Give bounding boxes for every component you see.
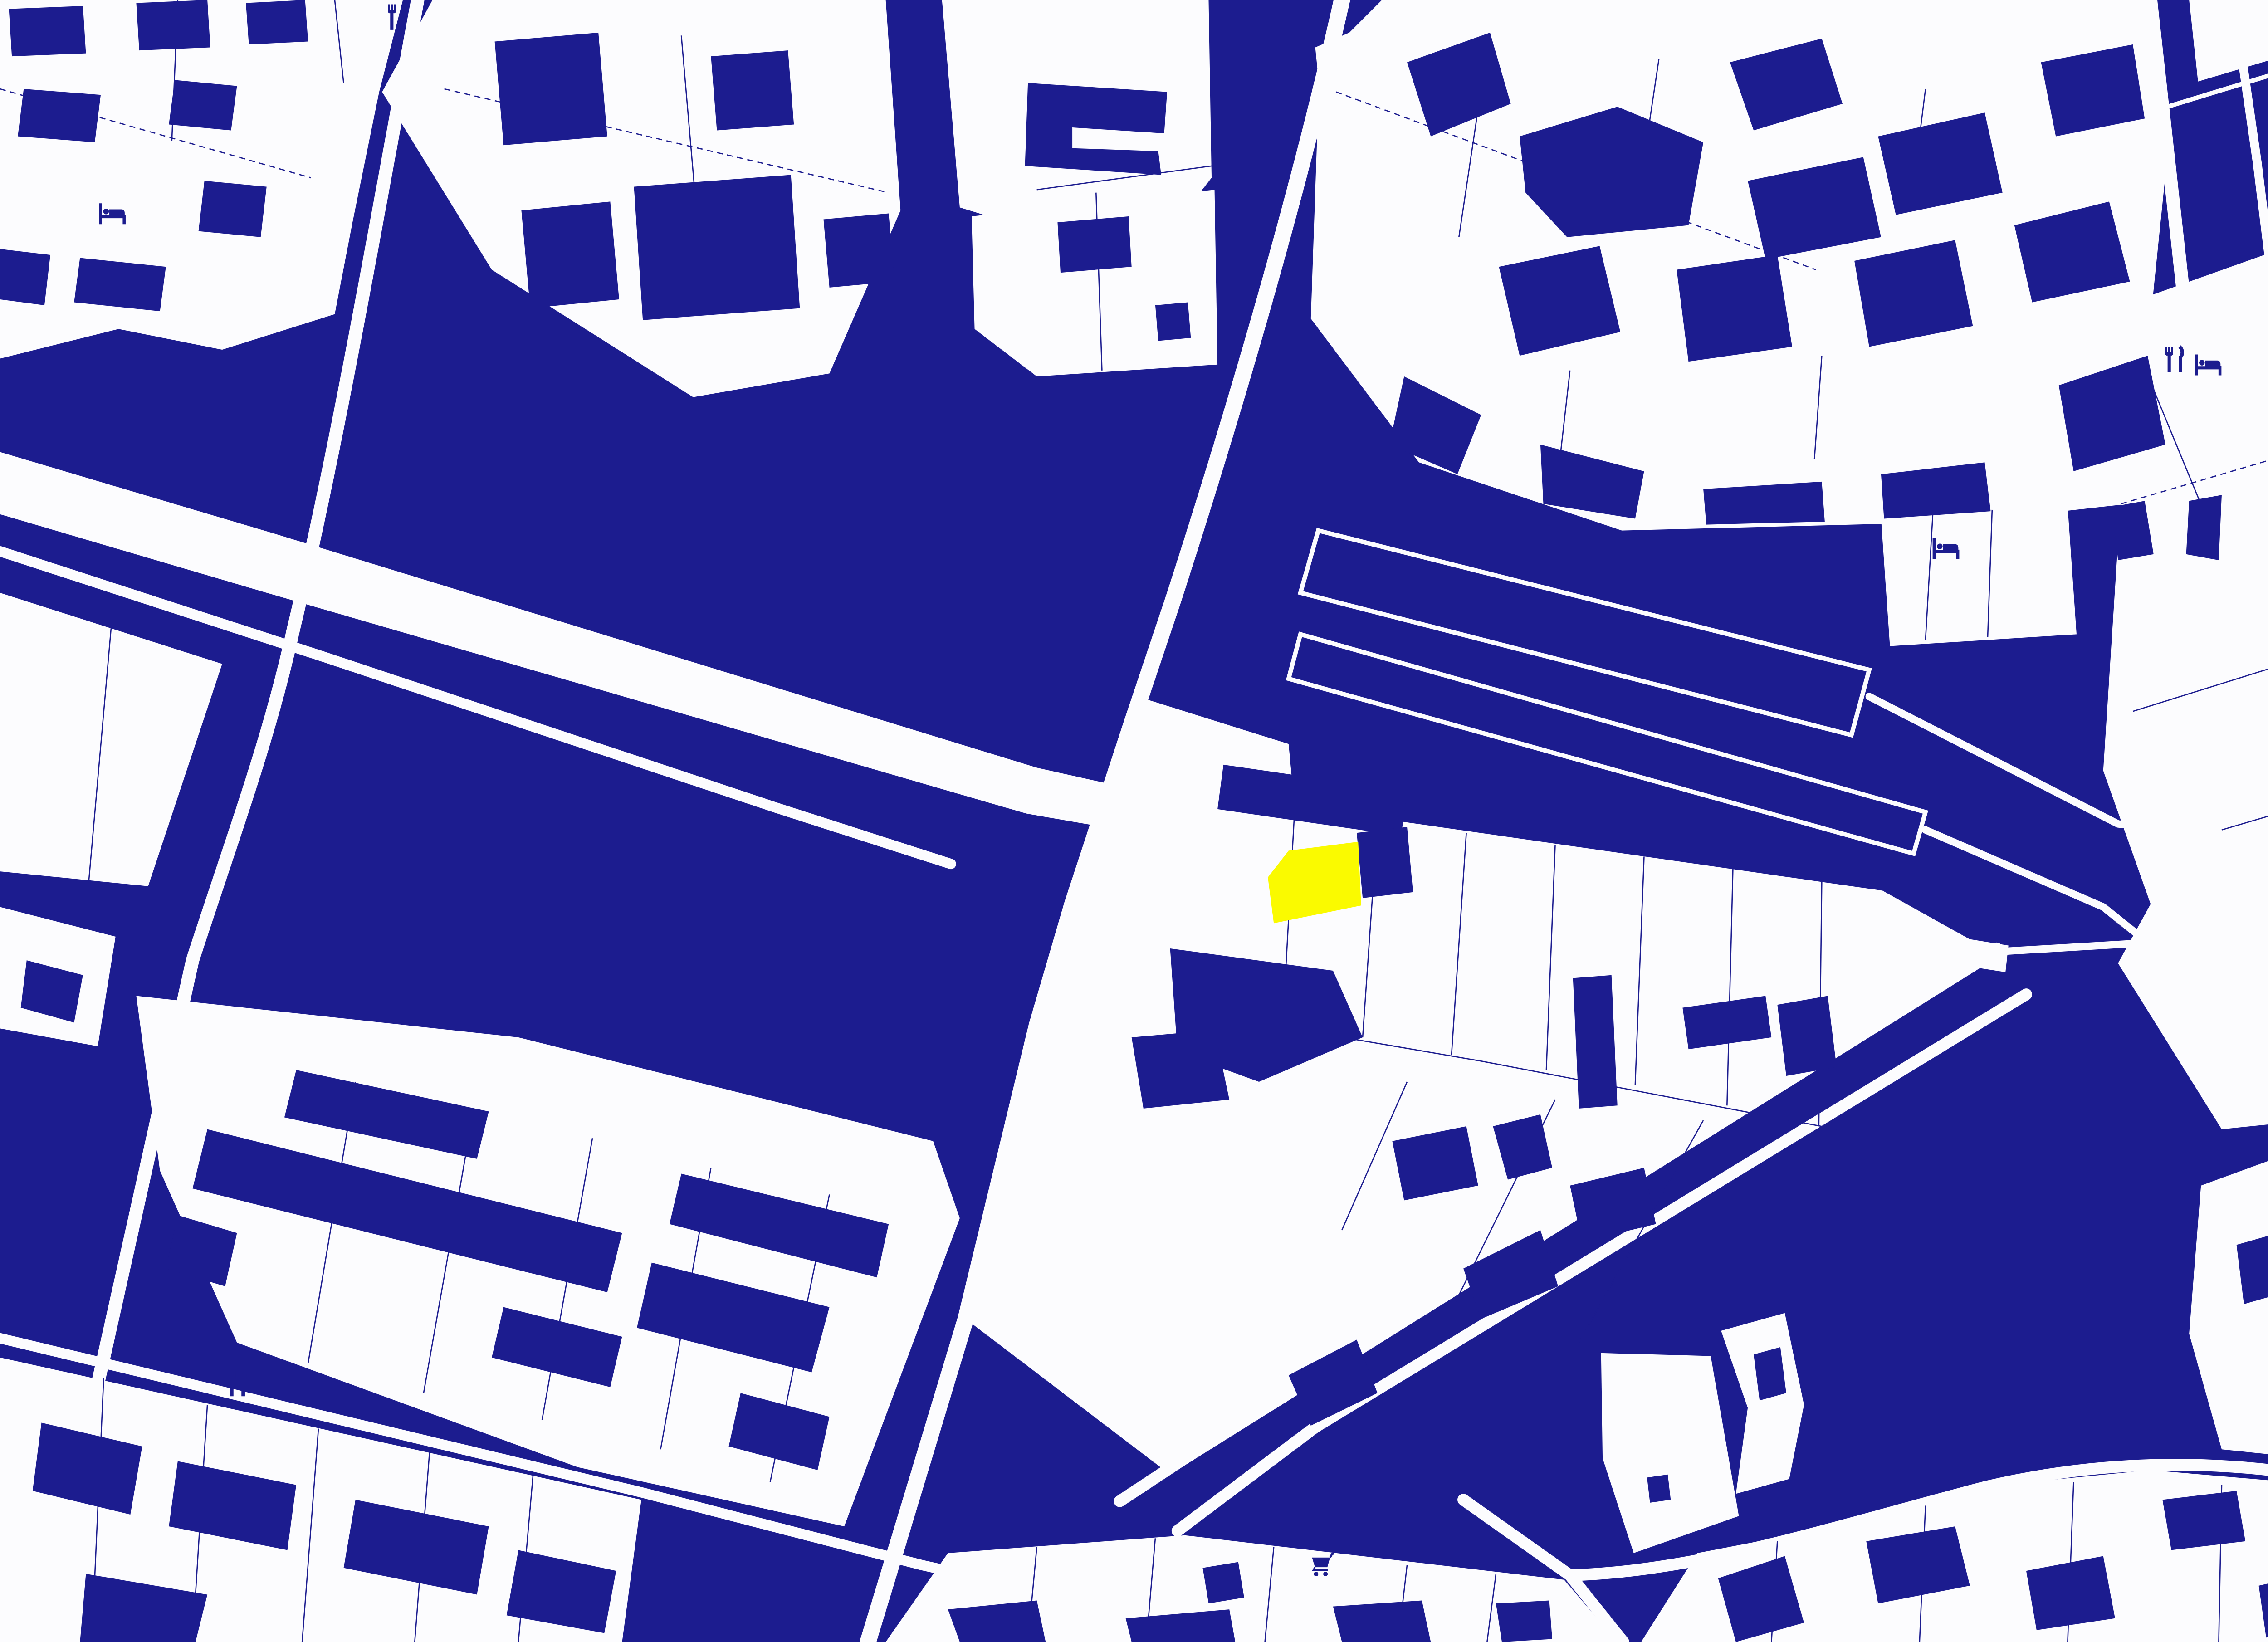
building-footprint: [1647, 1475, 1671, 1503]
building-footprint: [136, 0, 210, 50]
building-footprint: [1496, 1601, 1552, 1642]
building-footprint: [2162, 1491, 2245, 1550]
building-footprint: [1677, 255, 1792, 362]
city-map[interactable]: [0, 0, 2268, 1642]
building-footprint: [1777, 996, 1837, 1076]
building-footprint: [246, 0, 308, 44]
building-footprint: [1573, 975, 1618, 1109]
building-footprint: [1132, 1030, 1230, 1109]
building-footprint: [495, 33, 607, 145]
building-footprint: [634, 175, 800, 320]
map-canvas[interactable]: [0, 0, 2268, 1642]
block-bed-parcel: [1881, 507, 2077, 646]
block-below-g: [972, 190, 1217, 376]
building-footprint: [1057, 216, 1131, 273]
building-footprint: [169, 80, 237, 130]
building-footprint: [18, 89, 101, 142]
building-footprint: [1155, 302, 1191, 341]
building-footprint: [2186, 495, 2222, 560]
building-footprint: [711, 50, 794, 130]
building-footprint: [824, 213, 895, 287]
building-footprint: [1202, 1562, 1244, 1603]
building-footprint: [1025, 83, 1167, 175]
building-footprint: [1357, 827, 1413, 898]
building-footprint: [9, 6, 86, 56]
building-footprint: [199, 181, 267, 237]
building-footprint: [521, 201, 619, 308]
building-footprint: [74, 258, 166, 311]
building-footprint: [1333, 1601, 1431, 1642]
building-footprint: [1703, 482, 1825, 525]
building-footprint: [0, 249, 50, 305]
